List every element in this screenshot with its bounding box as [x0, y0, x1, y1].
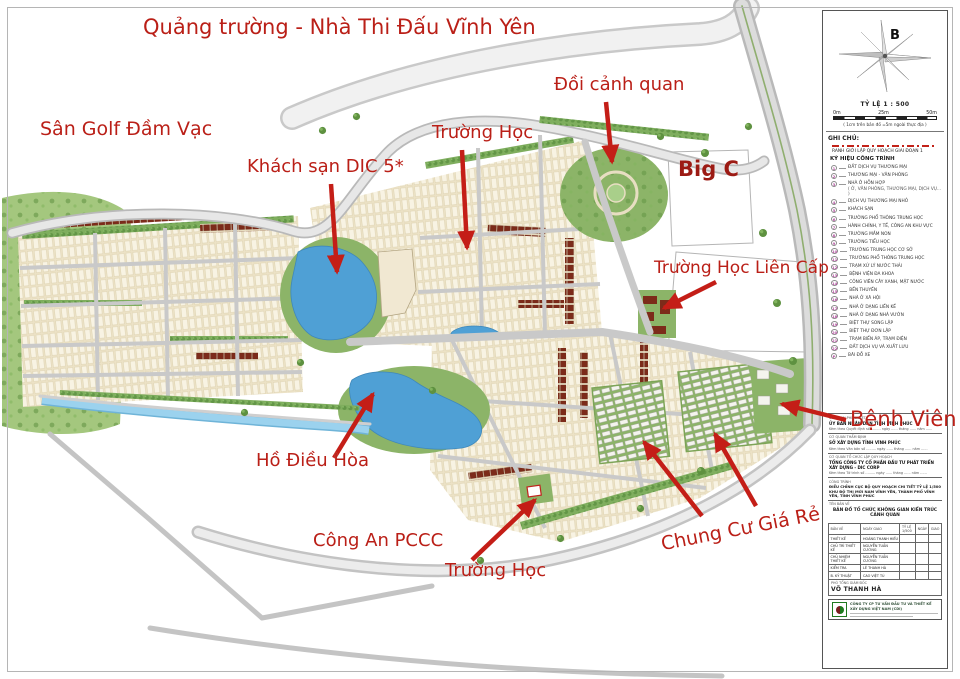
legend-tick: [840, 308, 847, 309]
legend-item: 1 ĐẤT DỊCH VỤ THƯƠNG MẠI: [831, 165, 942, 171]
scale-bar: [833, 116, 937, 120]
label-inter-level-school: Trường Học Liên Cấp: [654, 260, 829, 278]
legend-item: 2 THƯƠNG MẠI - VĂN PHÒNG: [831, 173, 942, 179]
notes-title: GHI CHÚ:: [828, 135, 942, 142]
project-header: CÔNG TRÌNH: [829, 480, 941, 484]
legend-item: 10 TRƯỜNG TRUNG HỌC CƠ SỞ: [831, 248, 942, 254]
name-cell: NGUYỄN TUẤN CƯỜNG: [861, 542, 900, 553]
legend-label: BẾN THUYỀN: [849, 288, 877, 293]
signature-name: VÕ THANH HÀ: [831, 586, 939, 593]
label-fire-police: Công An PCCC: [313, 532, 443, 551]
legend-item: 15 BẾN THUYỀN: [831, 288, 942, 294]
company-logo-icon: [832, 602, 847, 617]
legend-number: 22: [831, 345, 838, 351]
legend-label: KHÁCH SẠN: [848, 207, 873, 212]
legend-label: THƯƠNG MẠI - VĂN PHÒNG: [848, 173, 908, 178]
scale-note: ( 1cm trên bản đồ =5m ngoài thực địa ): [828, 122, 942, 127]
legend-number: 4: [831, 199, 837, 205]
role-cell: KIỂM TRA: [829, 564, 861, 572]
name-cell: NGUYỄN TUẤN CƯỜNG: [861, 553, 900, 564]
legend-number: 2: [831, 173, 837, 179]
legend-number: 15: [831, 288, 838, 294]
compass-rose: B: [828, 14, 942, 100]
legend-number: 3: [831, 181, 837, 187]
legend-number: 5: [831, 207, 837, 213]
legend-item: P BÃI ĐỖ XE: [831, 353, 942, 359]
legend-tick: [840, 259, 847, 260]
legend-item: 6 TRƯỜNG PHỔ THÔNG TRUNG HỌC: [831, 216, 942, 222]
title-block: CƠ QUAN PHÊ DUYỆT ỦY BAN NHÂN DÂN TỈNH V…: [828, 413, 942, 620]
boundary-label: RANH GIỚI LẬP QUY HOẠCH GIAI ĐOẠN 1: [832, 149, 942, 154]
legend-item: 5 KHÁCH SẠN: [831, 207, 942, 213]
section-organization: SỞ XÂY DỰNG TỈNH VĨNH PHÚC: [829, 440, 941, 445]
role-cell: THIẾT KẾ: [829, 535, 861, 543]
legend-number: P: [831, 353, 837, 359]
legend-item: 16 NHÀ Ở XÃ HỘI: [831, 296, 942, 302]
table-row: CHỦ NHIỆM THIẾT KẾ NGUYỄN TUẤN CƯỜNG: [829, 553, 942, 564]
legend-number: 19: [831, 321, 838, 327]
table-row: CHỦ TRÌ THIẾT KẾ NGUYỄN TUẤN CƯỜNG: [829, 542, 942, 553]
legend-number: 21: [831, 337, 838, 343]
scale-title: TỶ LỆ 1 : 500: [828, 101, 942, 108]
table-header-cell: BẢN VẼ: [829, 524, 861, 535]
label-dic-hotel: Khách sạn DIC 5*: [247, 158, 404, 177]
legend-label: NHÀ Ở HỖN HỢP: [848, 181, 885, 186]
signature-block: PHÓ TỔNG GIÁM ĐỐC VÕ THANH HÀ: [828, 580, 942, 597]
legend-tick: [840, 340, 847, 341]
name-cell: HOÀNG THANH HIẾU: [861, 535, 900, 543]
legend-tick: [840, 332, 847, 333]
plan-sheet: Quảng trường - Nhà Thi Đấu Vĩnh Yên Sân …: [0, 0, 960, 679]
legend-label: BỆNH VIỆN ĐA KHOA: [849, 272, 894, 277]
legend-item: 12 TRẠM XỬ LÝ NƯỚC THẢI: [831, 264, 942, 270]
legend-tick: [839, 227, 846, 228]
legend-label: TRƯỜNG TRUNG HỌC CƠ SỞ: [849, 248, 913, 253]
legend-label: NHÀ Ở XÃ HỘI: [849, 296, 880, 301]
legend-label: BIỆT THỰ ĐƠN LẬP: [849, 329, 891, 334]
name-cell: CAO VIỆT TÚ: [861, 572, 900, 580]
table-header-cell: TỶ LỆ 1/500: [900, 524, 916, 535]
legend-number: 13: [831, 272, 838, 278]
legend-tick: [840, 275, 847, 276]
section-organization: TỔNG CÔNG TY CỔ PHẦN ĐẦU TƯ PHÁT TRIỂN X…: [829, 460, 941, 470]
title-block-section: CƠ QUAN THẨM ĐỊNH SỞ XÂY DỰNG TỈNH VĨNH …: [828, 433, 942, 453]
label-hospital: Bệnh Viên: [850, 408, 957, 430]
legend-item: 11 TRƯỜNG PHỔ THÔNG TRUNG HỌC: [831, 256, 942, 262]
legend-label: TRƯỜNG TIỂU HỌC: [848, 240, 890, 245]
legend-number: 11: [831, 256, 838, 262]
legend-title: KÝ HIỆU CÔNG TRÌNH: [830, 156, 942, 162]
legend-item: 14 CÔNG VIÊN CÂY XANH, MẶT NƯỚC: [831, 280, 942, 286]
table-row: THIẾT KẾ HOÀNG THANH HIẾU: [829, 535, 942, 543]
legend-item: 17 NHÀ Ở DẠNG LIỀN KỀ: [831, 305, 942, 311]
legend-label: ĐẤT DỊCH VỤ VÀ XUẤT LƯU: [849, 345, 908, 350]
table-row: B. KỸ THUẬT CAO VIỆT TÚ: [829, 572, 942, 580]
label-school-top: Trường Học: [432, 124, 533, 143]
legend-tick: [839, 219, 846, 220]
west-housing-block: [18, 211, 303, 407]
legend-label: CÔNG VIÊN CÂY XANH, MẶT NƯỚC: [849, 280, 924, 285]
table-header-cell: NGÀY GIAO: [861, 524, 900, 535]
legend-label: TRƯỜNG PHỔ THÔNG TRUNG HỌC: [849, 256, 924, 261]
label-golf-course: Sân Golf Đầm Vạc: [40, 120, 212, 140]
north-indicator: B: [890, 28, 900, 43]
legend-item: 13 BỆNH VIỆN ĐA KHOA: [831, 272, 942, 278]
legend-number: 7: [831, 224, 837, 230]
drawing-name-header: TÊN BẢN VẼ: [829, 502, 941, 506]
legend-number: 20: [831, 329, 838, 335]
legend-number: 18: [831, 313, 838, 319]
label-plaza-stadium: Quảng trường - Nhà Thi Đấu Vĩnh Yên: [143, 16, 536, 38]
legend-number: 14: [831, 280, 838, 286]
legend-tick: [840, 283, 847, 284]
legend-tick: [839, 184, 846, 185]
signature-table: BẢN VẼNGÀY GIAOTỶ LỆ 1/500NGÀYGIAO THIẾT…: [828, 523, 942, 580]
legend-number: 1: [831, 165, 837, 171]
legend-item: 19 BIỆT THỰ SONG LẬP: [831, 321, 942, 327]
panel-divider: [826, 131, 944, 132]
panel-gap: [828, 361, 942, 413]
name-cell: LÊ THANH HÀ: [861, 564, 900, 572]
legend-tick: [840, 291, 847, 292]
legend-label: NHÀ Ở DẠNG NHÀ VƯỜN: [849, 313, 904, 318]
legend-list: 1 ĐẤT DỊCH VỤ THƯƠNG MẠI 2 THƯƠNG MẠI - …: [828, 165, 942, 359]
table-header-cell: GIAO: [929, 524, 942, 535]
legend-label: TRƯỜNG MẦM NON: [848, 232, 891, 237]
role-cell: CHỦ TRÌ THIẾT KẾ: [829, 542, 861, 553]
section-note: Kèm theo Văn bản số ......... ngày .....…: [829, 447, 941, 451]
project-section: CÔNG TRÌNH ĐIỀU CHỈNH CỤC BỘ QUY HOẠCH C…: [828, 477, 942, 500]
legend-tick: [840, 251, 847, 252]
legend-tick: [840, 299, 847, 300]
legend-label: DỊCH VỤ THƯƠNG MẠI NHỎ: [848, 199, 908, 204]
project-line2: KHU ĐÔ THỊ MỚI NAM VĨNH YÊN, THÀNH PHỐ V…: [829, 490, 941, 498]
school-bottom-parcel: [518, 474, 554, 506]
label-big-c: Big C: [678, 158, 739, 180]
legend-tick: [839, 356, 846, 357]
title-block-section: CƠ QUAN TỔ CHỨC LẬP QUY HOẠCH TỔNG CÔNG …: [828, 453, 942, 478]
legend-number: 9: [831, 240, 837, 246]
legend-label: BÃI ĐỖ XE: [848, 353, 870, 358]
legend-item: 9 TRƯỜNG TIỂU HỌC: [831, 240, 942, 246]
legend-item: 18 NHÀ Ở DẠNG NHÀ VƯỜN: [831, 313, 942, 319]
legend-tick: [839, 210, 846, 211]
legend-item: 4 DỊCH VỤ THƯƠNG MẠI NHỎ: [831, 199, 942, 205]
legend-item: 7 HÀNH CHÍNH, Y TẾ, CÔNG AN KHU VỰC: [831, 224, 942, 230]
legend-label: TRẠM BIẾN ÁP, TRẠM ĐIỆN: [849, 337, 907, 342]
signature-role: PHÓ TỔNG GIÁM ĐỐC: [831, 581, 939, 585]
legend-item: 21 TRẠM BIẾN ÁP, TRẠM ĐIỆN: [831, 337, 942, 343]
legend-label: TRƯỜNG PHỔ THÔNG TRUNG HỌC: [848, 216, 923, 221]
legend-label: NHÀ Ở DẠNG LIỀN KỀ: [849, 305, 896, 310]
section-note: Kèm theo Tờ trình số ......... ngày ....…: [829, 471, 941, 475]
legend-label: ĐẤT DỊCH VỤ THƯƠNG MẠI: [848, 165, 907, 170]
legend-tick: [839, 235, 846, 236]
legend-number: 8: [831, 232, 837, 238]
regulating-lake: [338, 366, 490, 454]
legend-number: 17: [831, 305, 838, 311]
label-landscape-hill: Đồi cảnh quan: [554, 76, 684, 95]
legend-label: BIỆT THỰ SONG LẬP: [849, 321, 893, 326]
legend-tick: [840, 316, 847, 317]
legend-tick: [840, 348, 847, 349]
legend-tick: [840, 324, 847, 325]
legend-tick: [839, 168, 846, 169]
legend-tick: [839, 243, 846, 244]
company-footer: CÔNG TY CP TƯ VẤN ĐẦU TƯ VÀ THIẾT KẾ XÂY…: [828, 599, 942, 620]
drawing-title: BẢN ĐỒ TỔ CHỨC KHÔNG GIAN KIẾN TRÚC CẢNH…: [829, 508, 941, 518]
section-header: CƠ QUAN TỔ CHỨC LẬP QUY HOẠCH: [829, 455, 941, 459]
legend-item: 22 ĐẤT DỊCH VỤ VÀ XUẤT LƯU: [831, 345, 942, 351]
legend-item: 20 BIỆT THỰ ĐƠN LẬP: [831, 329, 942, 335]
legend-tick: [839, 202, 846, 203]
role-cell: B. KỸ THUẬT: [829, 572, 861, 580]
label-school-bottom: Trường Học: [445, 562, 546, 581]
legend-tick: [840, 267, 847, 268]
legend-number: 10: [831, 248, 838, 254]
boundary-line-symbol: [832, 145, 937, 147]
address-line: [850, 613, 938, 615]
legend-number: 6: [831, 216, 837, 222]
section-header: CƠ QUAN THẨM ĐỊNH: [829, 435, 941, 439]
info-panel: B TỶ LỆ 1 : 500 0m25m50m ( 1cm trên bản …: [822, 10, 948, 669]
table-header-cell: NGÀY: [916, 524, 929, 535]
legend-sublabel: ( Ở, VĂN PHÒNG, THƯƠNG MẠI, DỊCH VỤ... ): [848, 187, 942, 198]
legend-item: 3 NHÀ Ở HỖN HỢP( Ở, VĂN PHÒNG, THƯƠNG MẠ…: [831, 181, 942, 197]
role-cell: CHỦ NHIỆM THIẾT KẾ: [829, 553, 861, 564]
company-name: CÔNG TY CP TƯ VẤN ĐẦU TƯ VÀ THIẾT KẾ XÂY…: [850, 602, 938, 611]
legend-number: 16: [831, 296, 838, 302]
legend-number: 12: [831, 264, 838, 270]
drawing-name-section: TÊN BẢN VẼ BẢN ĐỒ TỔ CHỨC KHÔNG GIAN KIẾ…: [828, 500, 942, 522]
project-line1: ĐIỀU CHỈNH CỤC BỘ QUY HOẠCH CHI TIẾT TỶ …: [829, 485, 941, 489]
address-line: [850, 616, 913, 618]
legend-label: HÀNH CHÍNH, Y TẾ, CÔNG AN KHU VỰC: [848, 224, 933, 229]
table-row: KIỂM TRA LÊ THANH HÀ: [829, 564, 942, 572]
legend-label: TRẠM XỬ LÝ NƯỚC THẢI: [849, 264, 902, 269]
legend-tick: [839, 176, 846, 177]
label-regulating-lake: Hồ Điều Hòa: [256, 452, 369, 471]
legend-item: 8 TRƯỜNG MẦM NON: [831, 232, 942, 238]
